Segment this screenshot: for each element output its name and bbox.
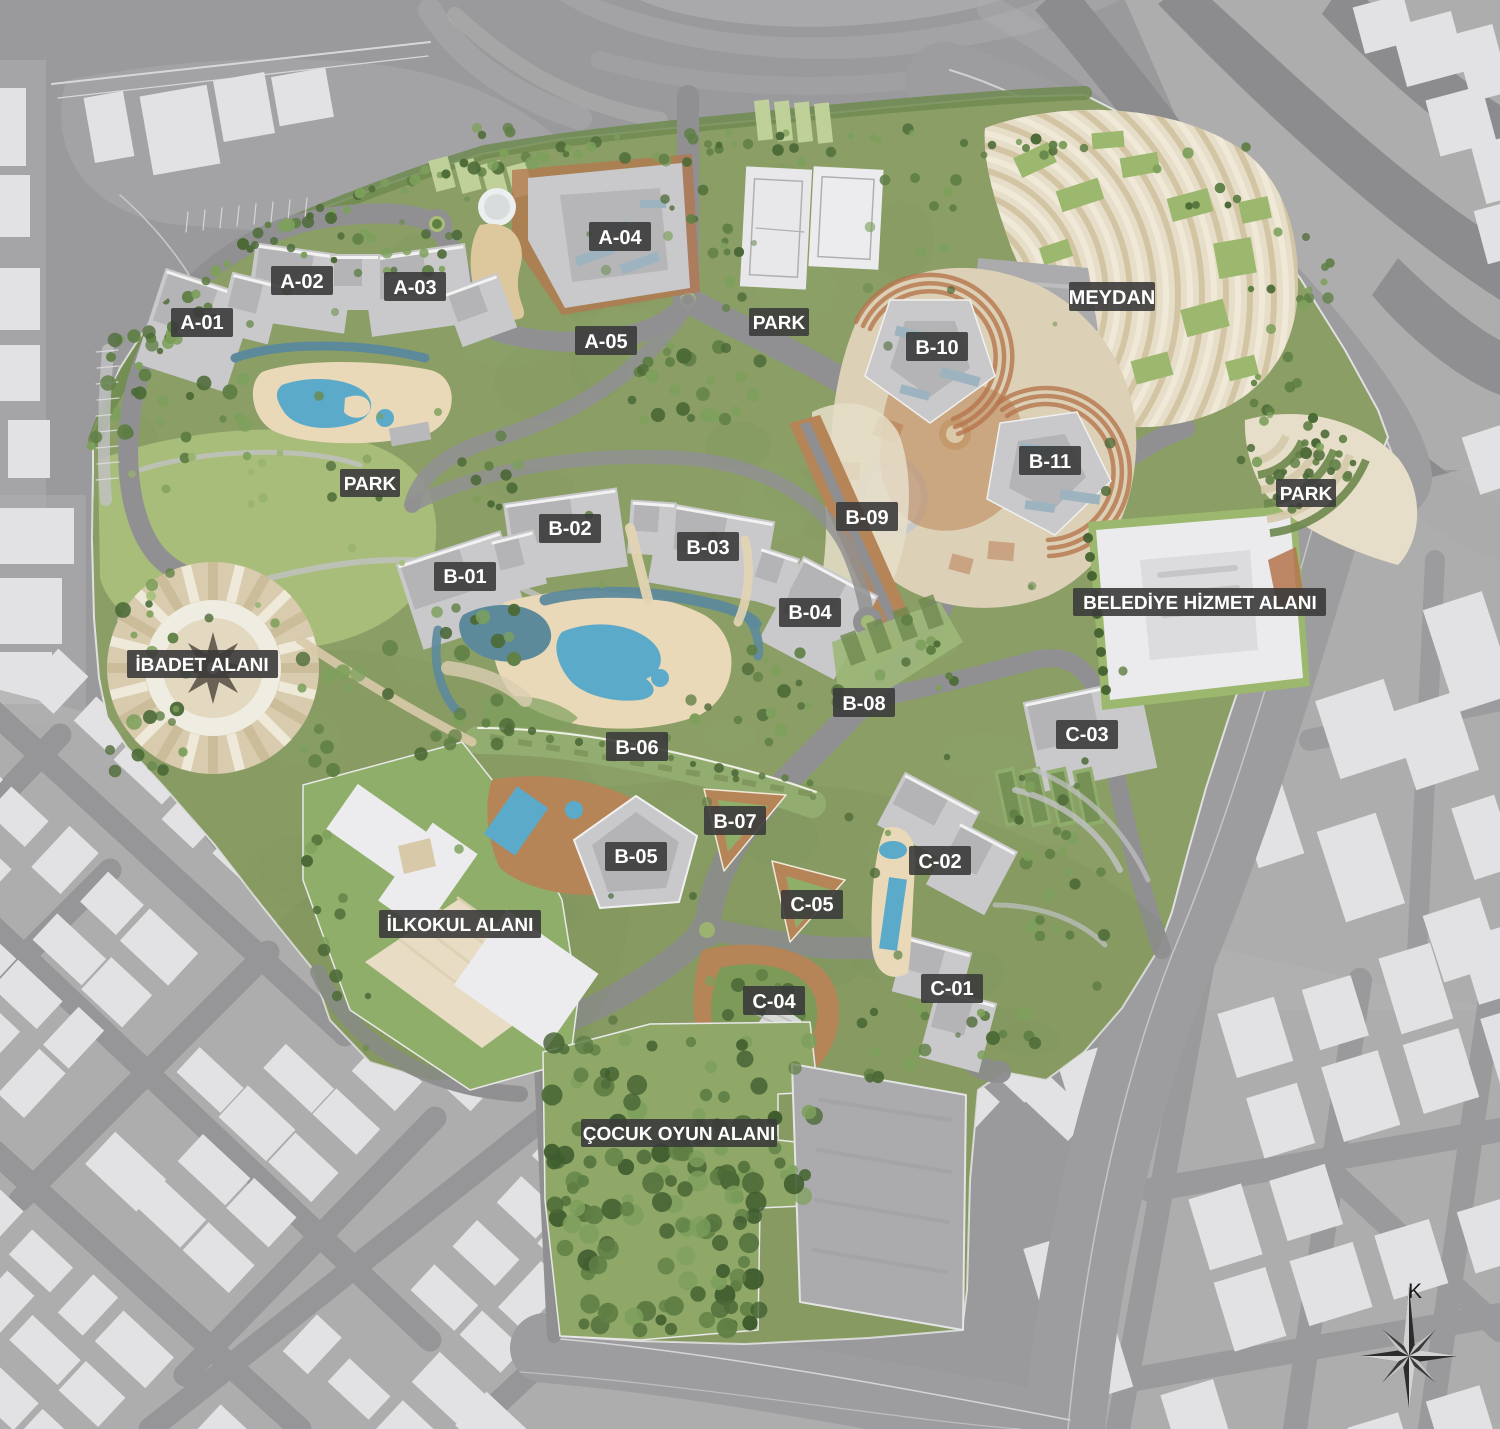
svg-text:C-03: C-03 — [1065, 724, 1108, 746]
svg-text:PARK: PARK — [753, 313, 806, 334]
svg-text:ÇOCUK OYUN ALANI: ÇOCUK OYUN ALANI — [583, 1124, 775, 1145]
svg-text:B-02: B-02 — [548, 518, 591, 540]
svg-text:BELEDİYE HİZMET ALANI: BELEDİYE HİZMET ALANI — [1083, 592, 1317, 614]
svg-text:İBADET ALANI: İBADET ALANI — [135, 654, 268, 676]
svg-text:B-01: B-01 — [443, 566, 486, 588]
svg-text:PARK: PARK — [1280, 484, 1333, 505]
svg-text:B-08: B-08 — [842, 693, 885, 715]
svg-text:A-02: A-02 — [280, 271, 323, 293]
svg-text:B-10: B-10 — [915, 337, 958, 359]
svg-text:B-11: B-11 — [1029, 451, 1071, 473]
svg-text:B-03: B-03 — [686, 537, 729, 559]
svg-text:C-04: C-04 — [752, 991, 796, 1013]
svg-text:C-02: C-02 — [918, 851, 961, 873]
svg-text:MEYDAN: MEYDAN — [1069, 287, 1156, 309]
svg-text:İLKOKUL ALANI: İLKOKUL ALANI — [387, 914, 534, 936]
svg-text:A-03: A-03 — [393, 277, 436, 299]
svg-text:PARK: PARK — [344, 474, 397, 495]
svg-text:A-01: A-01 — [180, 312, 223, 334]
svg-text:B-06: B-06 — [615, 737, 658, 759]
svg-text:B-07: B-07 — [713, 811, 756, 833]
svg-text:B-04: B-04 — [788, 602, 832, 624]
svg-text:C-01: C-01 — [930, 978, 973, 1000]
svg-text:A-04: A-04 — [598, 227, 642, 249]
svg-text:A-05: A-05 — [584, 331, 627, 353]
svg-text:B-05: B-05 — [614, 846, 657, 868]
svg-text:B-09: B-09 — [845, 507, 888, 529]
svg-text:C-05: C-05 — [790, 894, 833, 916]
